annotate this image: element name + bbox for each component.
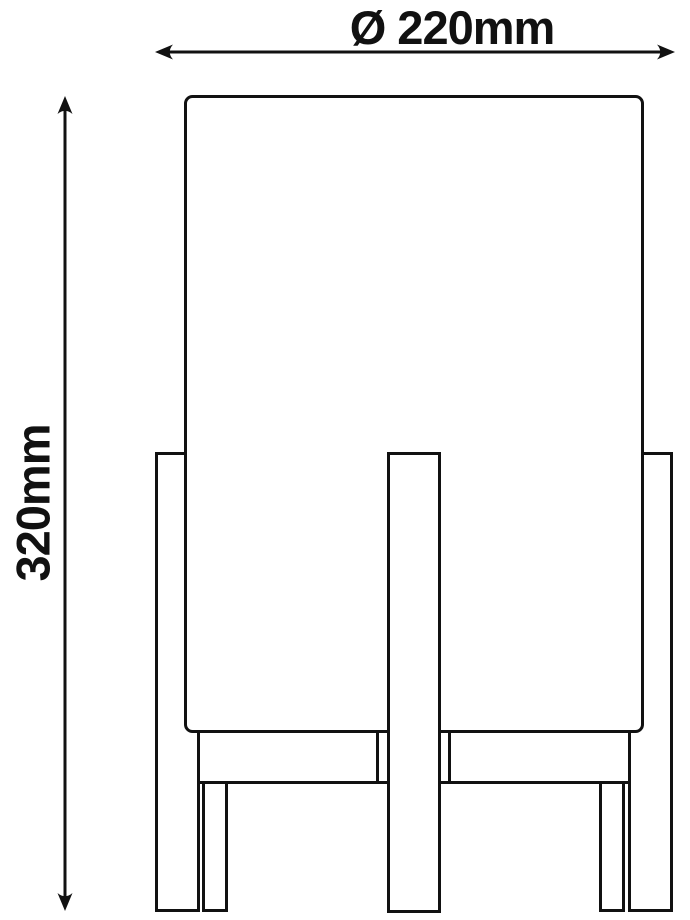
center-leg xyxy=(389,454,440,912)
width-dimension-label: Ø 220mm xyxy=(350,0,555,55)
technical-drawing xyxy=(0,0,690,920)
drawing-page: Ø 220mm 320mm xyxy=(0,0,690,920)
back-left-leg xyxy=(204,783,227,911)
height-dimension-label: 320mm xyxy=(6,425,61,582)
back-right-leg xyxy=(601,783,624,911)
